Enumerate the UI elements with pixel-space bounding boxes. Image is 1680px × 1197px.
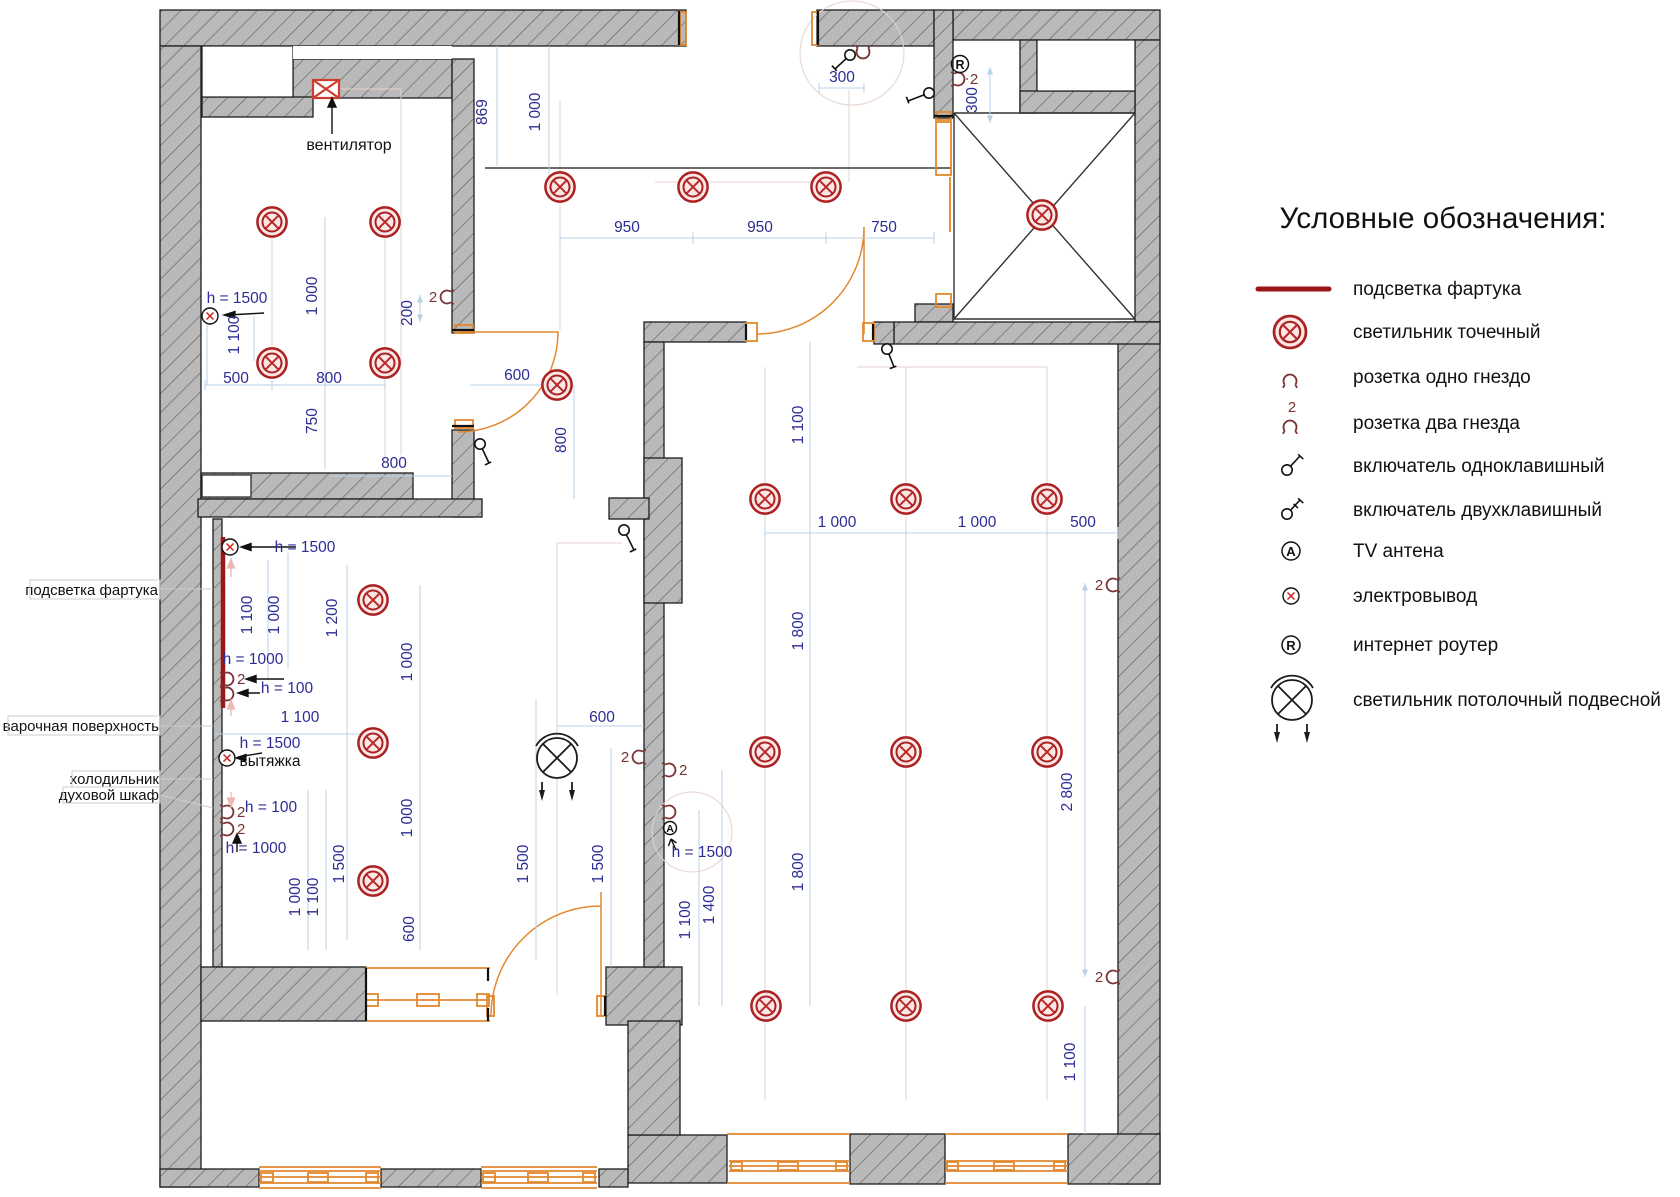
svg-text:h = 1500: h = 1500 (672, 844, 733, 861)
svg-text:2: 2 (679, 762, 687, 779)
svg-text:A: A (666, 823, 674, 835)
svg-text:2 800: 2 800 (1059, 772, 1076, 811)
svg-text:1 000: 1 000 (818, 514, 857, 531)
svg-text:1 100: 1 100 (226, 315, 243, 354)
svg-text:600: 600 (589, 709, 615, 726)
svg-text:духовой шкаф: духовой шкаф (59, 787, 159, 804)
svg-text:электровывод: электровывод (1353, 586, 1477, 607)
svg-text:1 000: 1 000 (304, 276, 321, 315)
svg-text:включатель двухклавишный: включатель двухклавишный (1353, 500, 1602, 521)
svg-text:TV антена: TV антена (1353, 541, 1444, 562)
svg-text:варочная поверхность: варочная поверхность (3, 718, 160, 735)
svg-text:750: 750 (871, 219, 897, 236)
svg-text:h = 1500: h = 1500 (240, 735, 301, 752)
svg-text:1 200: 1 200 (324, 598, 341, 637)
svg-text:холодильник: холодильник (70, 771, 160, 788)
svg-text:2: 2 (1288, 399, 1296, 416)
svg-text:1 100: 1 100 (305, 877, 322, 916)
svg-text:300: 300 (829, 69, 855, 86)
svg-text:1 000: 1 000 (958, 514, 997, 531)
svg-text:2: 2 (970, 71, 978, 88)
svg-text:h = 1000: h = 1000 (226, 840, 287, 857)
svg-text:1 400: 1 400 (701, 885, 718, 924)
svg-text:2: 2 (1095, 577, 1103, 594)
svg-text:1 100: 1 100 (1062, 1042, 1079, 1081)
svg-text:800: 800 (381, 455, 407, 472)
svg-text:1 100: 1 100 (281, 709, 320, 726)
svg-text:950: 950 (747, 219, 773, 236)
svg-text:1 100: 1 100 (677, 900, 694, 939)
svg-text:h = 100: h = 100 (261, 680, 314, 697)
svg-text:600: 600 (401, 916, 418, 942)
svg-text:h = 1500: h = 1500 (207, 290, 268, 307)
svg-text:подсветка фартука: подсветка фартука (25, 582, 158, 599)
svg-text:A: A (1286, 544, 1296, 559)
svg-text:светильник точечный: светильник точечный (1353, 322, 1540, 343)
svg-text:1 100: 1 100 (790, 405, 807, 444)
svg-text:950: 950 (614, 219, 640, 236)
svg-text:750: 750 (304, 408, 321, 434)
svg-text:200: 200 (399, 300, 416, 326)
svg-text:1 000: 1 000 (266, 595, 283, 634)
svg-text:1 500: 1 500 (515, 844, 532, 883)
svg-text:h = 100: h = 100 (245, 799, 298, 816)
svg-text:800: 800 (553, 427, 570, 453)
svg-text:1 500: 1 500 (590, 844, 607, 883)
svg-text:включатель одноклавишный: включатель одноклавишный (1353, 456, 1604, 477)
svg-text:500: 500 (223, 370, 249, 387)
svg-text:2: 2 (237, 671, 245, 688)
svg-text:розетка два гнезда: розетка два гнезда (1353, 413, 1520, 434)
svg-text:600: 600 (504, 367, 530, 384)
svg-text:1 000: 1 000 (399, 798, 416, 837)
svg-text:вытяжка: вытяжка (240, 753, 301, 770)
svg-text:800: 800 (316, 370, 342, 387)
svg-text:1 000: 1 000 (287, 877, 304, 916)
svg-text:подсветка фартука: подсветка фартука (1353, 279, 1522, 300)
svg-text:R: R (955, 58, 964, 72)
svg-text:1 000: 1 000 (527, 92, 544, 131)
svg-text:1 000: 1 000 (399, 642, 416, 681)
svg-text:2: 2 (621, 749, 629, 766)
svg-text:300: 300 (964, 87, 981, 113)
svg-text:h = 1000: h = 1000 (223, 651, 284, 668)
svg-text:интернет роутер: интернет роутер (1353, 635, 1498, 656)
svg-text:2: 2 (1095, 969, 1103, 986)
svg-text:Условные обозначения:: Условные обозначения: (1280, 202, 1607, 235)
svg-text:2: 2 (429, 289, 437, 306)
svg-text:869: 869 (474, 99, 491, 125)
svg-text:R: R (1286, 638, 1296, 653)
svg-text:1 800: 1 800 (790, 852, 807, 891)
svg-text:светильник потолочный подвесно: светильник потолочный подвесной (1353, 690, 1661, 711)
svg-text:розетка одно гнездо: розетка одно гнездо (1353, 367, 1531, 388)
svg-text:1 800: 1 800 (790, 611, 807, 650)
svg-text:1 100: 1 100 (239, 595, 256, 634)
svg-text:вентилятор: вентилятор (306, 137, 391, 154)
svg-text:1 500: 1 500 (331, 844, 348, 883)
svg-text:h = 1500: h = 1500 (275, 539, 336, 556)
svg-text:500: 500 (1070, 514, 1096, 531)
